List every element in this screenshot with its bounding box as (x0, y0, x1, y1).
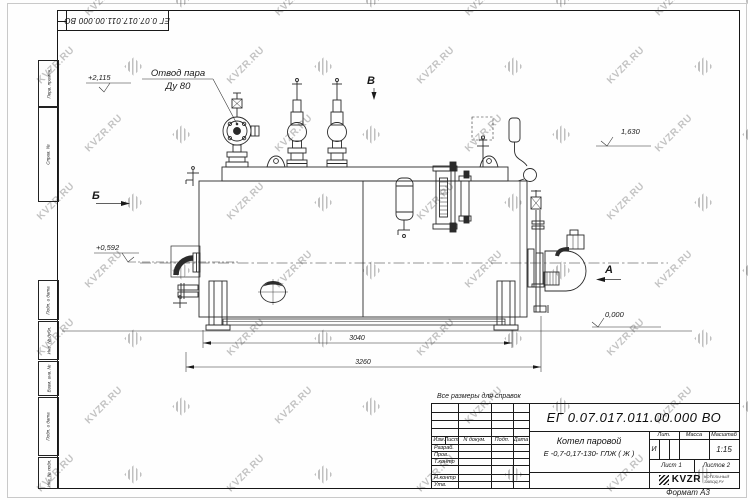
stamp-doc-number: ЕГ 0.07.017.011.00.000 ВО (66, 11, 168, 30)
burner (528, 230, 586, 291)
phantom-outline (472, 117, 493, 140)
product-name: Котел паровой (529, 435, 649, 447)
margin-box-perv-primen: Перв. примен. (38, 60, 59, 107)
steam-outlet-valve (223, 93, 259, 167)
feed-elbow (128, 246, 240, 277)
level-burner-axis: +0,592 (96, 243, 120, 252)
level-marks (86, 83, 661, 327)
callout-line1: Отвод пара (151, 68, 205, 79)
support-left (206, 281, 230, 330)
safety-valve (287, 79, 307, 168)
level-gauge-top: 1,630 (621, 127, 641, 136)
margin-label: Подп. и дата (46, 412, 51, 440)
drawing-sheet: KVZR.RUKVZR.RUKVZR.RUKVZR.RUKVZR.RUKVZR.… (0, 0, 750, 500)
row-tkontr: Т.контр (434, 459, 455, 465)
col-ndok: N докум. (458, 436, 491, 444)
sheets-label: Листов (703, 463, 725, 469)
sample-valve (186, 167, 199, 186)
margin-box-vzam-inv: Взам. инв. № (38, 361, 59, 396)
water-level-column (396, 178, 413, 238)
col-data: Дата (513, 436, 529, 444)
view-label-b: Б (92, 190, 100, 202)
margin-label: Подп. и дата (46, 286, 51, 314)
level-steam-outlet: +2,115 (88, 73, 111, 82)
title-block: Изм Лист N докум. Подп. Дата Разраб. Про… (431, 403, 740, 489)
margin-box-podp-data-2: Подп. и дата (38, 397, 59, 456)
col-podp: Подп. (491, 436, 513, 444)
level-ground: 0,000 (605, 310, 625, 319)
row-utv: Утв. (434, 482, 447, 488)
corner-stamp: ЕГ 0.07.017.011.00.000 ВО (57, 10, 169, 31)
sheet-number: 1 (679, 463, 682, 469)
format-label: Формат А3 (638, 488, 738, 499)
kvzr-logo: KVZR КОТЕЛЬНЫЙ ЗАВОД.РУ (649, 472, 739, 487)
margin-box-inv-dubl: Инв. № дубл. (38, 321, 59, 360)
margin-label: Справ. № (46, 144, 51, 164)
support-right (494, 281, 518, 330)
dim-inner: 3040 (349, 335, 365, 342)
boiler-shell (199, 167, 527, 325)
lit-value: И (649, 439, 659, 459)
gauge-glass (433, 162, 471, 232)
manhole (258, 279, 288, 305)
margin-label: Взам. инв. № (46, 365, 51, 393)
margin-label: Инв. № подл. (46, 459, 51, 487)
masshtab-label: Масштаб (709, 431, 739, 439)
lit-label: Лит. (649, 431, 679, 439)
margin-box-inv-podl: Инв. № подл. (38, 457, 59, 489)
kvzr-logo-icon (659, 475, 669, 485)
massa-label: Масса (679, 431, 709, 439)
col-list: Лист (445, 436, 458, 444)
pressure-sensor (509, 118, 537, 182)
row-prov: Пров. (434, 452, 449, 458)
kvzr-logo-subtext: КОТЕЛЬНЫЙ ЗАВОД.РУ (704, 475, 729, 484)
reference-note: Все размеры для справок (437, 392, 522, 400)
sheet-cell: Лист 1 (649, 459, 694, 472)
safety-valve-2 (327, 79, 347, 168)
product-designation: Е -0,7-0,17-130- ГЛЖ ( Ж ) (529, 448, 649, 458)
view-label-a: А (604, 264, 613, 276)
margin-box-podp-data-1: Подп. и дата (38, 280, 59, 320)
row-nkontr: Н.контр (434, 475, 456, 481)
doc-number: ЕГ 0.07.017.011.00.000 ВО (529, 404, 739, 431)
view-label-v: В (367, 75, 375, 87)
kvzr-logo-text: KVZR (672, 474, 701, 485)
callout-line2: Ду 80 (165, 81, 191, 92)
dim-overall: 3260 (355, 359, 371, 366)
sheets-number: 2 (727, 463, 730, 469)
row-razrab: Разраб. (434, 445, 454, 451)
lifting-lug (267, 156, 498, 167)
margin-label: Перв. примен. (46, 69, 51, 99)
scale-value: 1:15 (709, 439, 739, 459)
sheets-cell: Листов 2 (694, 459, 739, 472)
margin-label: Инв. № дубл. (46, 327, 51, 355)
margin-box-sprav: Справ. № (38, 107, 59, 202)
drain-stubs (173, 283, 198, 308)
sheet-label: Лист (661, 463, 676, 469)
kvzr-sub2: ЗАВОД.РУ (704, 480, 729, 485)
